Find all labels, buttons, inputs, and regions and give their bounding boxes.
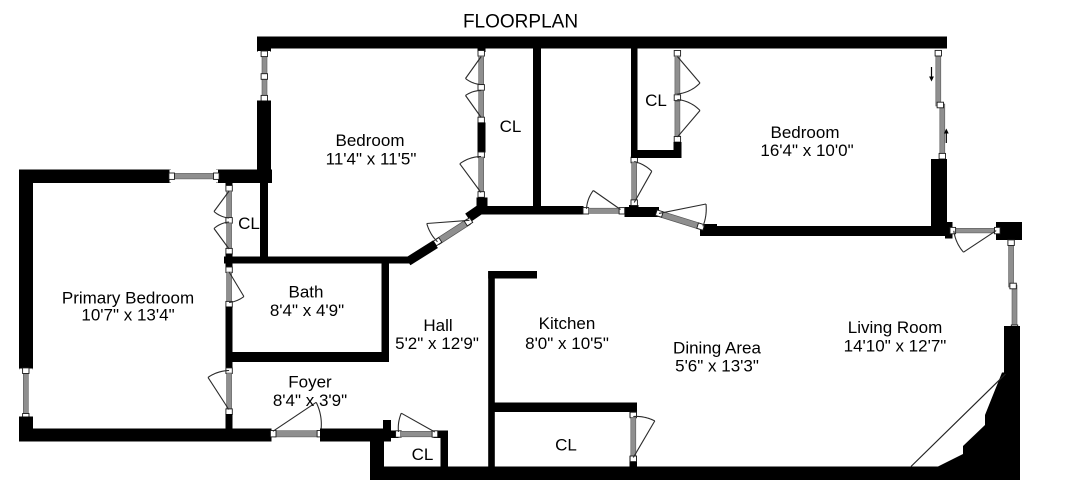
svg-text:Dining Area: Dining Area bbox=[673, 339, 761, 358]
svg-text:5'6" x 13'3": 5'6" x 13'3" bbox=[675, 357, 759, 376]
svg-text:CL: CL bbox=[645, 91, 667, 110]
svg-text:Bedroom: Bedroom bbox=[771, 123, 840, 142]
svg-text:Bath: Bath bbox=[289, 283, 324, 302]
svg-text:8'4" x 4'9": 8'4" x 4'9" bbox=[270, 301, 344, 320]
svg-text:CL: CL bbox=[500, 117, 522, 136]
svg-text:16'4" x 10'0": 16'4" x 10'0" bbox=[760, 141, 853, 160]
svg-text:Living Room: Living Room bbox=[848, 318, 943, 337]
svg-text:CL: CL bbox=[238, 214, 260, 233]
svg-text:5'2" x 12'9": 5'2" x 12'9" bbox=[395, 334, 479, 353]
svg-text:Bedroom: Bedroom bbox=[336, 131, 405, 150]
svg-text:11'4" x 11'5": 11'4" x 11'5" bbox=[326, 150, 417, 169]
svg-text:CL: CL bbox=[412, 445, 434, 464]
svg-text:Foyer: Foyer bbox=[288, 373, 332, 392]
svg-text:14'10" x 12'7": 14'10" x 12'7" bbox=[844, 337, 947, 356]
svg-text:10'7" x 13'4": 10'7" x 13'4" bbox=[81, 306, 174, 325]
svg-text:Kitchen: Kitchen bbox=[539, 314, 596, 333]
svg-text:FLOORPLAN: FLOORPLAN bbox=[463, 12, 578, 33]
svg-text:Hall: Hall bbox=[423, 316, 452, 335]
svg-text:8'0" x 10'5": 8'0" x 10'5" bbox=[525, 334, 609, 353]
svg-text:CL: CL bbox=[555, 436, 577, 455]
svg-text:8'4" x 3'9": 8'4" x 3'9" bbox=[273, 391, 347, 410]
